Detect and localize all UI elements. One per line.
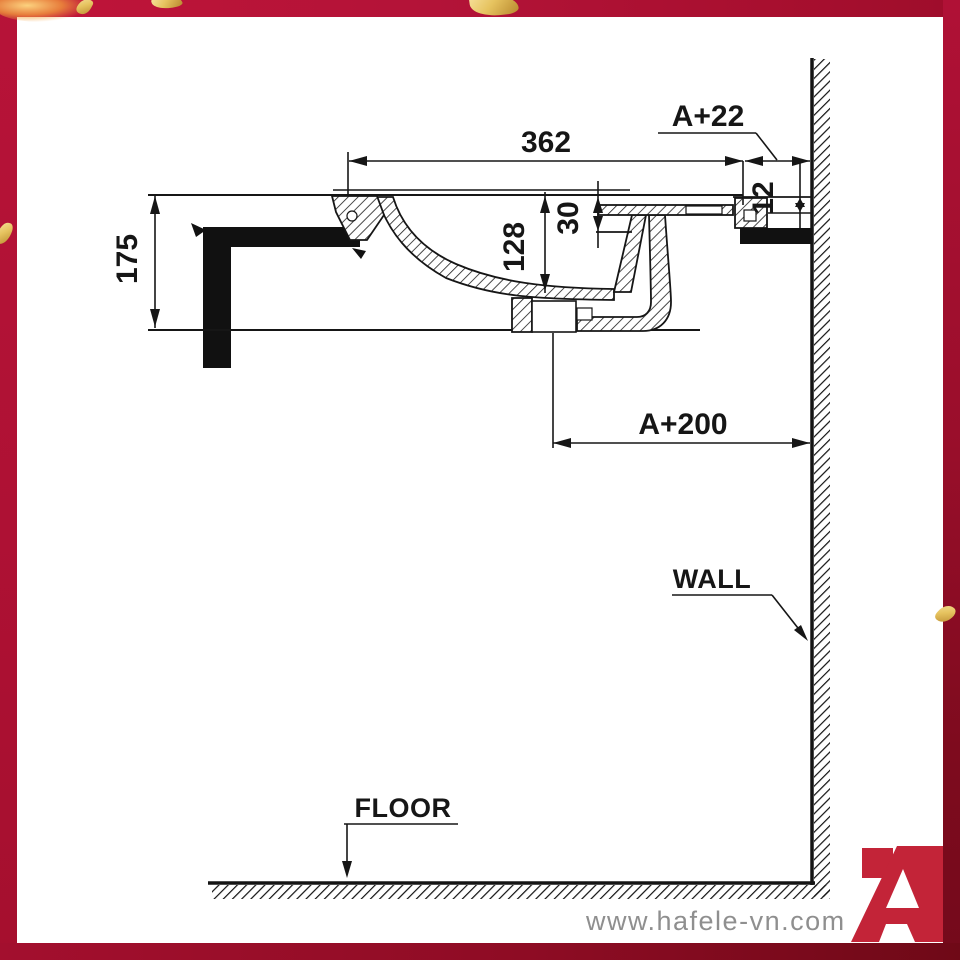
hafele-logo-icon [0,0,960,960]
website-watermark: www.hafele-vn.com [586,906,846,937]
frame-border-bottom [0,943,960,960]
frame-border-right [943,0,960,960]
frame-border-left [0,0,17,960]
product-dimension-image: 362 A+22 12 30 128 175 A+200 WALL FLOOR … [0,0,960,960]
